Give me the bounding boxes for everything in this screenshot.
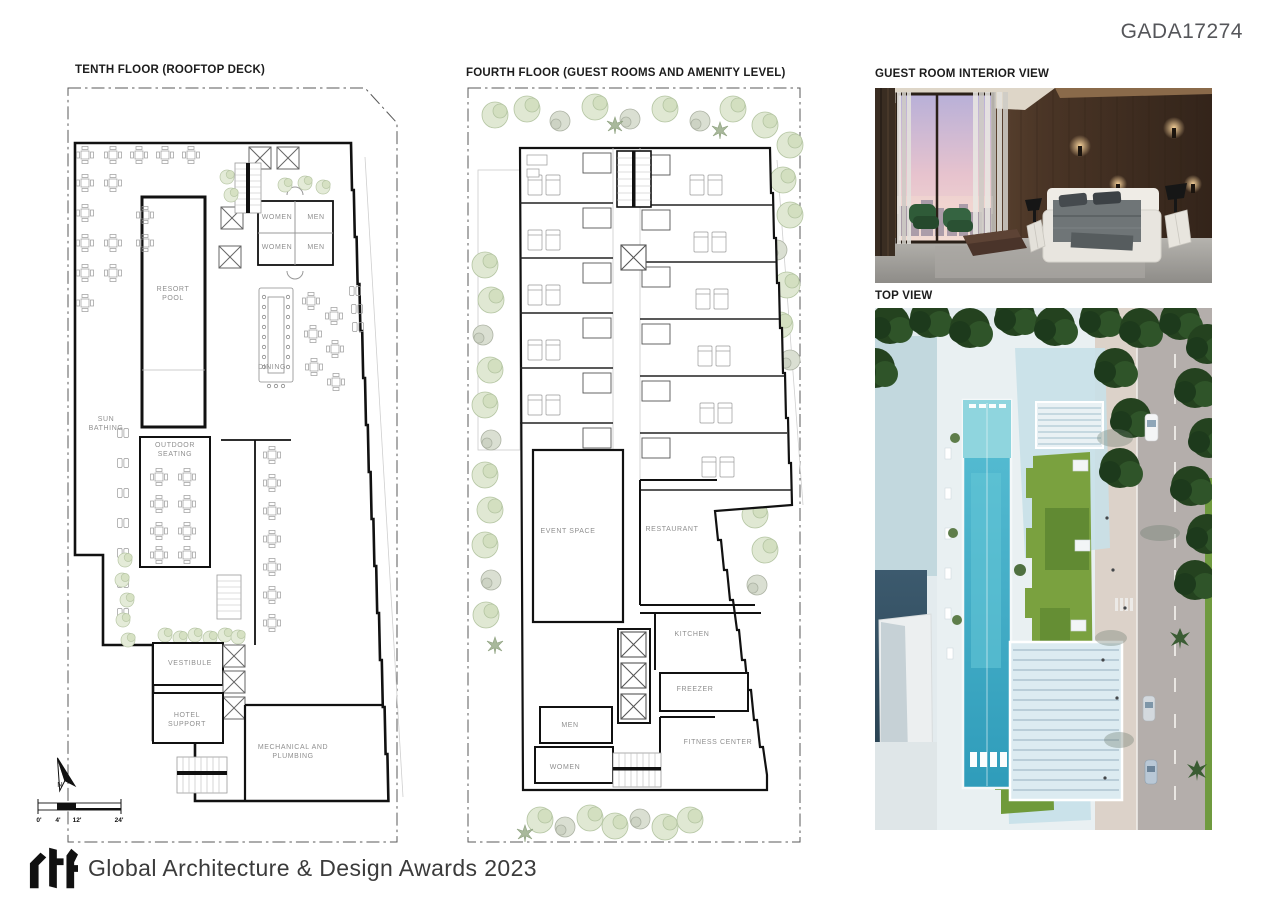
car-silver: [1143, 696, 1155, 721]
pergola-upper: [1036, 402, 1103, 448]
stair-bottom: [177, 757, 227, 793]
room-label: WOMEN: [262, 243, 293, 252]
room-label: SUN BATHING: [82, 415, 130, 434]
aerial-render: [875, 308, 1212, 830]
dark-drape: [875, 88, 895, 256]
stair-mid: [217, 575, 241, 619]
tenth-floor-plan: WOMEN MEN WOMEN MEN RESORT POOL DINING S…: [35, 85, 435, 850]
swimming-pool: [963, 400, 1011, 788]
room-label: WOMEN: [550, 763, 581, 772]
room-label: FREEZER: [677, 685, 714, 694]
room-label: VESTIBULE: [168, 659, 212, 668]
interior-render: [875, 88, 1212, 283]
scale-tick: 12': [73, 817, 82, 824]
scale-tick: 24': [115, 817, 124, 824]
room-label: MEN: [561, 721, 578, 730]
elevator-bank: [618, 629, 650, 723]
scale-tick: 4': [55, 817, 60, 824]
room-label: RESORT POOL: [150, 285, 196, 304]
bed: [1043, 188, 1161, 262]
north-label: N: [57, 780, 62, 789]
room-label: OUTDOOR SEATING: [147, 441, 203, 460]
rtf-logo: [28, 845, 78, 891]
elevator-icon: [621, 245, 646, 270]
room-label: EVENT SPACE: [541, 527, 596, 536]
elevator-icon: [223, 671, 245, 693]
stair-bottom: [613, 753, 661, 787]
elevator-icon: [277, 147, 299, 169]
banquet-table: [259, 288, 293, 388]
room-label: KITCHEN: [675, 630, 710, 639]
room-label: MECHANICAL AND PLUMBING: [241, 743, 345, 762]
top-view-title: TOP VIEW: [875, 290, 932, 302]
elevator-icon: [223, 697, 245, 719]
room-label: HOTEL SUPPORT: [161, 711, 213, 730]
room-label: WOMEN: [262, 213, 293, 222]
top-view-photo: [875, 308, 1212, 830]
guest-room-interior-photo: [875, 88, 1212, 283]
scale-bar: [38, 799, 121, 814]
resort-pool: [142, 197, 205, 427]
stair-core: [617, 151, 651, 207]
tenth-floor-drawing: [35, 85, 435, 850]
elevator-icon: [219, 246, 241, 268]
restrooms: [258, 187, 333, 279]
car-blue: [1145, 760, 1157, 784]
room-label: FITNESS CENTER: [684, 738, 753, 747]
stair-top: [235, 163, 261, 213]
room-label: RESTAURANT: [646, 525, 699, 534]
award-title: Global Architecture & Design Awards 2023: [88, 855, 537, 882]
interior-view-title: GUEST ROOM INTERIOR VIEW: [875, 68, 1049, 80]
presentation-board: GADA17274 TENTH FLOOR (ROOFTOP DECK) FOU…: [0, 0, 1273, 900]
room-label: DINING: [258, 363, 286, 372]
car-white: [1145, 414, 1158, 441]
fourth-floor-drawing: [465, 85, 810, 850]
room-label: MEN: [307, 243, 324, 252]
fourth-floor-title: FOURTH FLOOR (GUEST ROOMS AND AMENITY LE…: [466, 67, 786, 79]
elevator-icon: [223, 645, 245, 667]
pergola-lower: [1010, 642, 1122, 800]
entry-code: GADA17274: [1121, 20, 1243, 44]
scale-tick: 0': [36, 817, 41, 824]
tenth-floor-title: TENTH FLOOR (ROOFTOP DECK): [75, 64, 265, 76]
room-label: MEN: [307, 213, 324, 222]
fourth-floor-plan: EVENT SPACE RESTAURANT KITCHEN FREEZER M…: [465, 85, 810, 850]
footer: Global Architecture & Design Awards 2023: [28, 845, 537, 891]
